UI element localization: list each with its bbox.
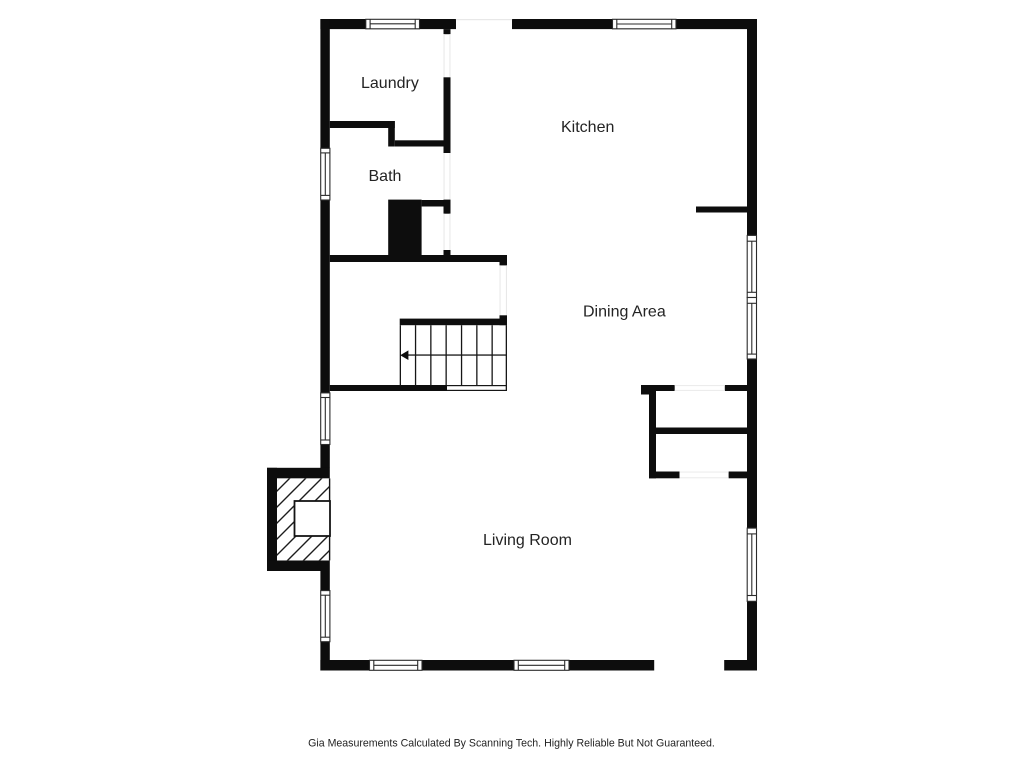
svg-text:Dining Area: Dining Area bbox=[583, 304, 666, 321]
svg-text:Gia Measurements Calculated By: Gia Measurements Calculated By Scanning … bbox=[308, 738, 715, 750]
svg-text:Laundry: Laundry bbox=[361, 75, 419, 92]
svg-text:Kitchen: Kitchen bbox=[561, 119, 614, 136]
svg-text:Bath: Bath bbox=[369, 168, 402, 185]
svg-text:Living Room: Living Room bbox=[483, 532, 572, 549]
